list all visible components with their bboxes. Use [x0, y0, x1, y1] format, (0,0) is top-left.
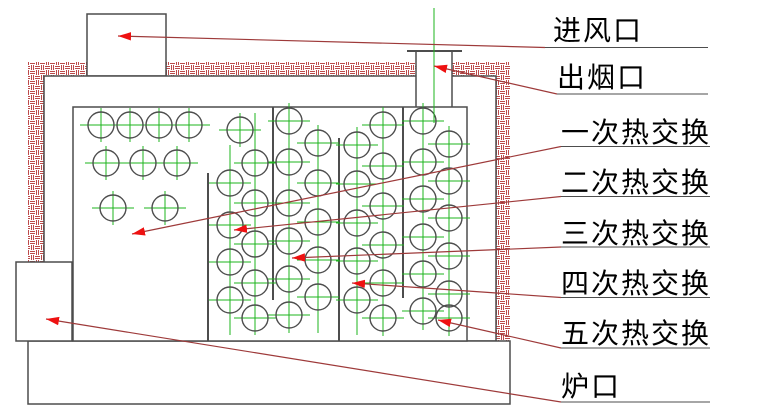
top-wall-left	[28, 62, 87, 76]
top-wall-middle	[166, 62, 416, 76]
label-furnace-door: 炉口	[561, 373, 621, 403]
label-smoke-outlet: 出烟口	[557, 64, 647, 94]
label-heat-exchange-3: 三次热交换	[561, 220, 711, 250]
leader-air-inlet	[118, 36, 545, 48]
base	[28, 341, 510, 404]
furnace-door-box	[16, 262, 72, 341]
label-heat-exchange-1: 一次热交换	[561, 119, 711, 149]
left-wall	[28, 75, 44, 263]
label-heat-exchange-2: 二次热交换	[561, 169, 711, 199]
tube-chamber	[73, 107, 467, 341]
label-air-inlet: 进风口	[553, 17, 643, 47]
top-wall-right	[452, 62, 510, 76]
air-inlet-box	[87, 14, 166, 76]
label-heat-exchange-5: 五次热交换	[561, 320, 711, 350]
boiler-diagram: 进风口 出烟口 一次热交换 二次热交换 三次热交换 四次热交换 五次热交换 炉口	[0, 0, 759, 418]
label-heat-exchange-4: 四次热交换	[561, 270, 711, 300]
